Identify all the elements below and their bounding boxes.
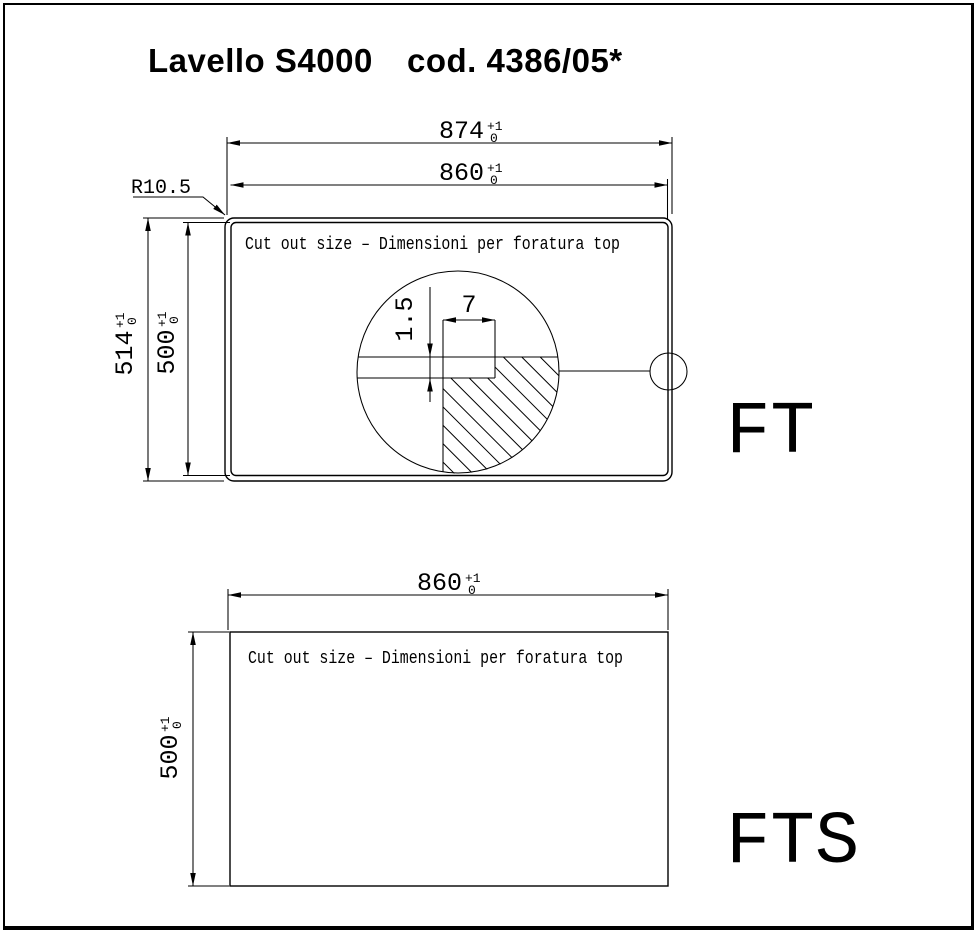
title-code: cod. 4386/05* — [407, 42, 623, 79]
corner-radius-callout: R10.5 — [131, 177, 225, 215]
top-cutout-note: Cut out size – Dimensioni per foratura t… — [245, 235, 620, 255]
section-hatch — [443, 357, 559, 474]
dim-bottom-height-tol-minus: 0 — [170, 721, 185, 729]
dim-cutout-width-tol-minus: 0 — [490, 173, 498, 188]
dim-cutout-width-top: 860 +1 0 — [231, 159, 668, 220]
dim-lip-width-value: 7 — [461, 291, 476, 320]
view-label-ft: FT — [726, 391, 815, 475]
top-view: Cut out size – Dimensioni per foratura t… — [111, 117, 815, 481]
dim-bottom-width-tol-minus: 0 — [468, 583, 476, 598]
dim-cutout-height-value: 500 — [153, 329, 182, 374]
dim-lip-height-value: 1.5 — [391, 296, 420, 341]
dim-cutout-height-bottom: 500 +1 0 — [156, 632, 229, 886]
dim-outer-width-value: 874 — [439, 117, 484, 146]
bottom-view: Cut out size – Dimensioni per foratura t… — [156, 569, 859, 886]
rim-section-detail: 7 1.5 — [357, 271, 687, 474]
dim-cutout-width-bottom: 860 +1 0 — [228, 569, 668, 630]
bottom-cutout-outline — [230, 632, 668, 886]
view-label-fts: FTS — [726, 801, 859, 885]
dim-bottom-width-value: 860 — [417, 569, 462, 598]
drawing-sheet: Lavello S4000 cod. 4386/05* Cut out size… — [0, 0, 977, 933]
drawing-canvas: Lavello S4000 cod. 4386/05* Cut out size… — [0, 0, 977, 933]
dim-outer-height-value: 514 — [111, 330, 140, 375]
dim-cutout-height-top: 500 +1 0 — [153, 223, 230, 476]
page-title: Lavello S4000 cod. 4386/05* — [148, 42, 623, 79]
title-product: Lavello S4000 — [148, 42, 373, 79]
bottom-cutout-note: Cut out size – Dimensioni per foratura t… — [248, 649, 623, 669]
dim-cutout-height-tol-minus: 0 — [167, 316, 182, 324]
dim-cutout-width-value: 860 — [439, 159, 484, 188]
dim-bottom-height-value: 500 — [156, 734, 185, 779]
dim-outer-width-tol-minus: 0 — [490, 131, 498, 146]
dim-outer-height-tol-minus: 0 — [125, 317, 140, 325]
